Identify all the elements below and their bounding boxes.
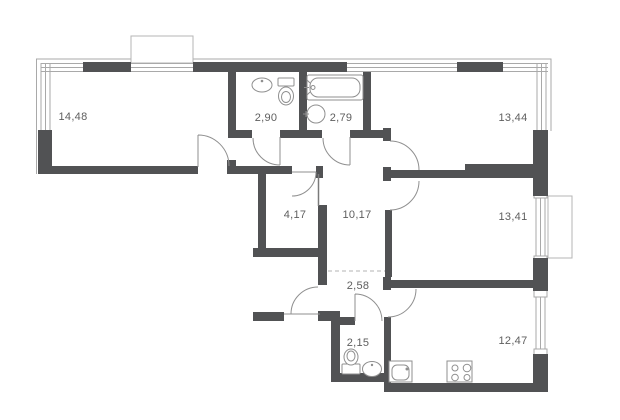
door-bedroom-top-right — [390, 141, 419, 170]
label-bedroom-top-right: 13,44 — [498, 112, 527, 124]
label-corridor: 2,58 — [347, 280, 370, 292]
room-labels: 14,48 2,90 2,79 13,44 4,17 10,17 13,41 2… — [58, 111, 527, 349]
toilet-icon — [342, 349, 360, 374]
door-wardrobe — [292, 172, 316, 196]
label-bathroom: 2,90 — [255, 112, 278, 124]
sink-icon — [363, 362, 382, 377]
door-living-room — [198, 135, 229, 167]
label-living-room: 14,48 — [58, 111, 87, 123]
balcony-top — [131, 36, 193, 63]
entry-door — [284, 287, 320, 314]
facade-outline — [37, 59, 552, 174]
balcony-right — [548, 196, 572, 258]
stove-icon — [447, 361, 472, 382]
label-kitchen-living: 12,47 — [498, 335, 527, 347]
door-bathroom-2 — [323, 137, 350, 165]
label-bedroom-right: 13,41 — [498, 211, 527, 223]
bathtub-icon — [304, 75, 363, 100]
door-bathroom — [253, 137, 280, 165]
label-wc: 2,15 — [347, 337, 370, 349]
kitchen-sink-icon — [389, 361, 412, 382]
label-hallway: 10,17 — [342, 209, 371, 221]
door-wc — [355, 294, 382, 321]
sink-icon — [252, 78, 272, 92]
label-bathroom-2: 2,79 — [330, 112, 353, 124]
toilet-icon — [278, 78, 294, 105]
door-kitchen — [388, 289, 416, 317]
fixtures — [252, 75, 472, 382]
floor-plan-drawing: 14,48 2,90 2,79 13,44 4,17 10,17 13,41 2… — [0, 0, 620, 420]
door-bedroom-right — [390, 181, 419, 210]
label-wardrobe: 4,17 — [284, 209, 307, 221]
floor-plan: 14,48 2,90 2,79 13,44 4,17 10,17 13,41 2… — [0, 0, 620, 420]
walls — [38, 62, 548, 392]
